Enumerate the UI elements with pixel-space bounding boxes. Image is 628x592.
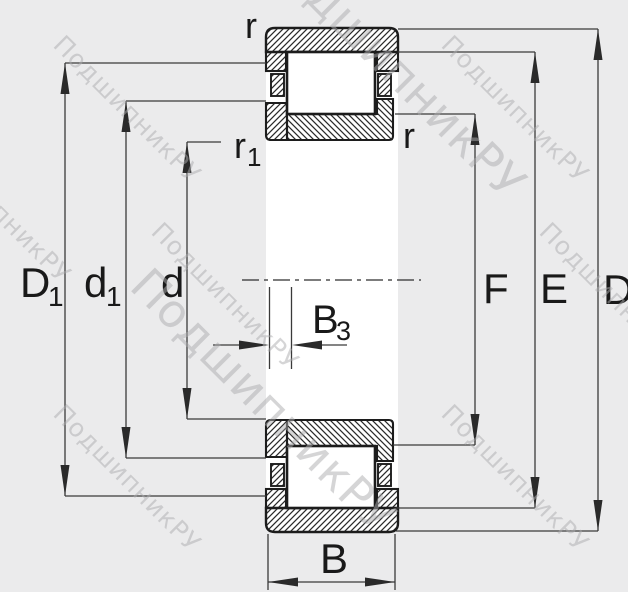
cage-left-bottom: [271, 464, 284, 486]
bearing-diagram-svg: D 1 d 1 d F E D B B 3 r r r 1 ПодшипникР…: [0, 0, 628, 592]
label-B3-sub: 3: [336, 316, 351, 346]
outer-rib-left-bottom: [266, 489, 286, 508]
cage-left-top: [271, 74, 284, 96]
label-B3: B: [312, 298, 339, 342]
loose-rib-top: [266, 103, 287, 140]
label-B: B: [320, 535, 348, 582]
label-r1: r: [234, 125, 246, 166]
label-r-top: r: [245, 5, 257, 46]
outer-rib-left-top: [266, 52, 286, 71]
bearing-drawing: D 1 d 1 d F E D B B 3 r r r 1 ПодшипникР…: [0, 0, 628, 592]
label-E: E: [540, 265, 568, 312]
label-d1: d: [84, 259, 107, 306]
label-r1-sub: 1: [247, 142, 261, 172]
label-d1-sub: 1: [106, 281, 122, 312]
label-F: F: [483, 265, 509, 312]
